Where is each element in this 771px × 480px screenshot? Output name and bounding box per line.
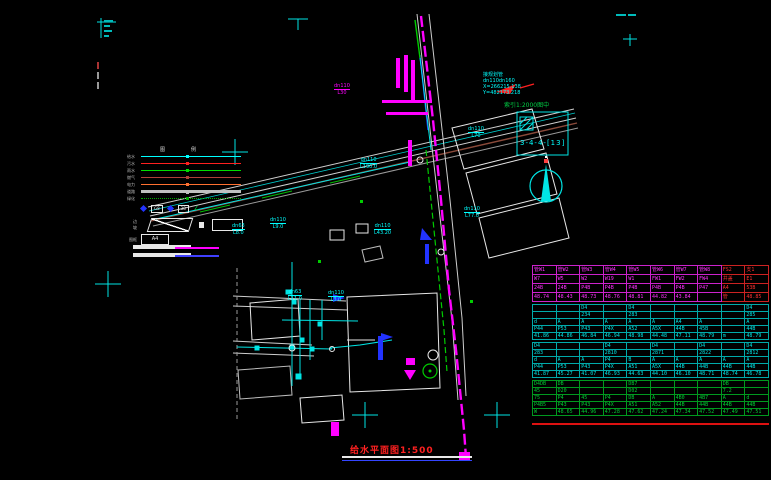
table-cell (603, 305, 627, 312)
table-cell: P43 (580, 364, 604, 371)
legend-line-marker (186, 162, 189, 165)
table-cell: 45.27 (556, 371, 580, 378)
legend-a4-row: 图框 A4 (129, 234, 169, 245)
pipeline-magenta (331, 16, 470, 460)
table-cell: 53B (745, 284, 769, 293)
legend-symbol-box: G8 (151, 205, 163, 213)
table-row: 24B24BP4BP4BP4BP4BP4BP47A453B (533, 284, 769, 293)
table-row: 2832810287128222812 (533, 350, 769, 357)
table-group-g4: D4DBDBDB7DB45D20D027.275P445P4DBA4B04B7A… (532, 380, 769, 416)
table-cell: 24B (533, 284, 557, 293)
table-cell: 47.49 (721, 409, 745, 416)
table-cell: 管 (721, 293, 745, 302)
table-cell: A51 (627, 402, 651, 409)
table-cell: 48.79 (698, 333, 722, 340)
pipe-label: dn110L70 (468, 126, 484, 139)
table-row: 41.8745.2741.0746.9344.6344.1046.1048.71… (533, 371, 769, 378)
legend-line-marker (186, 183, 189, 186)
table-cell (627, 350, 651, 357)
table-cell (698, 381, 722, 388)
legend-green-mark: ∠ (194, 205, 199, 212)
table-cell: A (603, 319, 627, 326)
table-cell: 井盖 (721, 275, 745, 284)
table-cell (721, 326, 745, 333)
table-cell: 2812 (745, 350, 769, 357)
table-cell: D4 (533, 343, 557, 350)
legend-row-label: 道路 (127, 189, 141, 194)
table-cell: 44.10 (650, 371, 674, 378)
table-cell (698, 388, 722, 395)
table-cell (580, 388, 604, 395)
north-arrow (530, 156, 562, 202)
table-group-g2: D4D4D4234283285dAAAAAA4AAP44P53P43P4XA52… (532, 304, 769, 340)
slope-label: 边坡 (133, 219, 141, 231)
table-cell (674, 305, 698, 312)
table-cell: W1 (627, 275, 651, 284)
table-row: 48.7448.4348.7348.7648.8144.8243.84管48.8… (533, 293, 769, 302)
table-cell: A (650, 395, 674, 402)
table-cell: 4B0 (674, 395, 698, 402)
table-cell: A (674, 357, 698, 364)
table-cell: 41.87 (533, 371, 557, 378)
valve-diamond-icon (167, 205, 174, 212)
table-cell: 46.10 (674, 371, 698, 378)
table-row: 45D20D027.2 (533, 388, 769, 395)
legend-row: 道路 (127, 188, 241, 195)
table-cell: DB (556, 381, 580, 388)
index-reference: 3-4-4-[13] (520, 139, 565, 147)
table-cell: 44.86 (556, 333, 580, 340)
table-group-g1: 管W1管W2管W3管W4管W5管W6管W7管W8FS2支1W7W5W2W19W1… (532, 265, 769, 302)
table-cell: A5X (650, 364, 674, 371)
legend-row-label: 燃气 (127, 175, 141, 180)
table-cell: D4 (580, 305, 604, 312)
table-cell (603, 388, 627, 395)
table-cell: 48.74 (533, 293, 557, 302)
table-row: dAAP4BAAAAA (533, 357, 769, 364)
table-cell (674, 381, 698, 388)
table-cell: P44 (533, 326, 557, 333)
table-cell: A51 (627, 364, 651, 371)
table-cell: 48.74 (721, 371, 745, 378)
table-cell: P4X (603, 364, 627, 371)
index-box (517, 112, 568, 155)
table-cell: D4 (627, 305, 651, 312)
pipe-label: dn63L8.0 (232, 223, 245, 236)
table-cell (674, 343, 698, 350)
table-cell (580, 350, 604, 357)
table-cell: 支1 (745, 266, 769, 275)
table-cell: D4 (745, 343, 769, 350)
table-row: D4D4D4D4D4 (533, 343, 769, 350)
table-cell: P47 (698, 284, 722, 293)
table-cell: A (698, 319, 722, 326)
table-row: P4B5P43P43P4XA51A5244B44B44B44B (533, 402, 769, 409)
table-cell (698, 293, 722, 302)
table-cell: 44.48 (650, 333, 674, 340)
legend-row: 雨水 (127, 167, 241, 174)
table-cell: P4 (603, 357, 627, 364)
legend-slope-row: 边坡 (133, 218, 243, 232)
table-cell: 43.84 (674, 293, 698, 302)
table-cell (745, 388, 769, 395)
title-underline-white (342, 456, 472, 458)
table-cell: 46.84 (580, 333, 604, 340)
table-cell: FS2 (721, 266, 745, 275)
house-filled-symbol (199, 222, 205, 228)
table-cell: A (698, 357, 722, 364)
table-cell: 283 (627, 312, 651, 319)
table-cell (650, 388, 674, 395)
table-cell: 2822 (698, 350, 722, 357)
table-cell: 44B (698, 402, 722, 409)
pipe-label: dn110L190.0 (360, 157, 377, 170)
table-cell: 48.43 (556, 293, 580, 302)
legend-line-sample (141, 170, 241, 171)
table-cell: 管W6 (650, 266, 674, 275)
legend-row-label: 污水 (127, 161, 141, 166)
table-cell: A (556, 319, 580, 326)
legend-line-marker (186, 176, 189, 179)
table-cell: 4B7 (698, 395, 722, 402)
drawing-title: 给水平面图1:500 (350, 443, 434, 456)
table-cell: B (627, 357, 651, 364)
table-cell: P4B (627, 284, 651, 293)
cad-viewport: { "palette": {"cyan":"#00ffff","magenta"… (0, 0, 771, 480)
table-cell (721, 305, 745, 312)
table-cell: 管W4 (603, 266, 627, 275)
table-cell: 44B (698, 364, 722, 371)
table-cell: 283 (533, 350, 557, 357)
table-cell: 46.93 (603, 371, 627, 378)
legend-line-marker (186, 197, 189, 200)
index-scale-note: 索引1:2000图中 (504, 102, 549, 109)
legend-line-sample (141, 177, 241, 178)
table-cell: 45 (580, 395, 604, 402)
table-cell: W7 (533, 275, 557, 284)
magenta-sample-line (175, 247, 219, 249)
table-cell: A (745, 357, 769, 364)
table-cell: D4 (603, 343, 627, 350)
table-cell (556, 343, 580, 350)
legend-row-label: 雨水 (127, 168, 141, 173)
table-cell: 47.62 (627, 409, 651, 416)
table-cell: 48.65 (556, 409, 580, 416)
table-cell: P4 (603, 395, 627, 402)
table-cell (533, 305, 557, 312)
legend-row-label: 电力 (127, 182, 141, 187)
table-cell: 48.76 (603, 293, 627, 302)
table-cell: 管W1 (533, 266, 557, 275)
table-row: 234283285 (533, 312, 769, 319)
table-cell: A (556, 357, 580, 364)
title-underline-blue (342, 460, 472, 461)
table-row: 41.8644.8646.8446.9448.9844.4847.1148.79… (533, 333, 769, 340)
table-cell: A (721, 395, 745, 402)
legend-line-marker (186, 191, 189, 194)
table-row: P44P53P43P4XA52A5X44B45B44B (533, 326, 769, 333)
table-cell: A (627, 319, 651, 326)
legend-line-sample (141, 198, 241, 199)
table-row: W48.6544.9647.2847.6247.2447.3447.5247.4… (533, 409, 769, 416)
table-cell (650, 305, 674, 312)
table-cell: A4 (721, 284, 745, 293)
table-cell: 48.73 (580, 293, 604, 302)
table-cell: P43 (580, 326, 604, 333)
table-cell: P53 (556, 364, 580, 371)
table-cell (627, 343, 651, 350)
table-cell: D4DB (533, 381, 557, 388)
table-cell: 44.82 (650, 293, 674, 302)
legend-header: 图例 (160, 146, 222, 153)
table-cell: A (580, 319, 604, 326)
table-cell: A4 (674, 319, 698, 326)
table-cell (650, 381, 674, 388)
table-cell: 46.94 (603, 333, 627, 340)
pipe-label: dn110L30 (334, 83, 350, 96)
a4-label: 图框 (129, 237, 137, 243)
table-cell (721, 319, 745, 326)
legend-symbol-box: 38 (178, 205, 189, 213)
table-cell: 48.98 (627, 333, 651, 340)
table-cell (580, 343, 604, 350)
table-cell: 44B (745, 364, 769, 371)
table-cell: d (533, 357, 557, 364)
legend-row: 电力 (127, 181, 241, 188)
table-cell: 44B (721, 364, 745, 371)
table-cell: A (650, 357, 674, 364)
table-cell: P53 (556, 326, 580, 333)
table-cell: 46.78 (745, 371, 769, 378)
table-cell (698, 305, 722, 312)
table-cell: 44B (745, 402, 769, 409)
buildings (238, 109, 569, 423)
table-cell: 47.11 (674, 333, 698, 340)
table-cell: P4X (603, 326, 627, 333)
table-cell: W (533, 409, 557, 416)
table-cell: D4 (745, 305, 769, 312)
legend-row-label: 绿化 (127, 196, 141, 201)
table-cell: FW2 (674, 275, 698, 284)
table-row: 管W1管W2管W3管W4管W5管W6管W7管W8FS2支1 (533, 266, 769, 275)
table-cell: d (745, 395, 769, 402)
pipe-label: dn110L77.0 (464, 206, 480, 219)
table-cell (556, 305, 580, 312)
table-cell: 管W5 (627, 266, 651, 275)
table-cell: E1 (745, 275, 769, 284)
table-cell: 45 (533, 388, 557, 395)
table-cell: 41.86 (533, 333, 557, 340)
pipe-label: dn110L3.0 (328, 290, 344, 303)
table-cell: 44B (721, 402, 745, 409)
table-cell: 48.71 (698, 371, 722, 378)
table-cell: 44B (674, 402, 698, 409)
table-cell: P43 (556, 402, 580, 409)
table-cell: 44.96 (580, 409, 604, 416)
legend-line-rows: 给水污水雨水燃气电力道路绿化 (127, 153, 241, 202)
table-cell (556, 350, 580, 357)
table-cell (674, 388, 698, 395)
table-cell (745, 381, 769, 388)
table-cell: 45B (698, 326, 722, 333)
table-cell: A52 (627, 326, 651, 333)
legend-line-sample (141, 156, 241, 157)
table-cell: FW1 (650, 275, 674, 284)
table-cell: 44B (674, 326, 698, 333)
table-cell: 47.34 (674, 409, 698, 416)
table-cell: 管W7 (674, 266, 698, 275)
table-cell: m (721, 333, 745, 340)
table-cell (674, 312, 698, 319)
table-cell (603, 381, 627, 388)
elevation-data-table: 管W1管W2管W3管W4管W5管W6管W7管W8FS2支1W7W5W2W19W1… (532, 265, 769, 418)
table-cell: FW4 (698, 275, 722, 284)
legend-row: 给水 (127, 153, 241, 160)
table-cell: P4B5 (533, 402, 557, 409)
table-cell: 48.85 (745, 293, 769, 302)
pipe-label: dn63L11.0 (288, 289, 302, 302)
table-cell: P43 (580, 402, 604, 409)
legend-row: 燃气 (127, 174, 241, 181)
table-cell: A5X (650, 326, 674, 333)
table-cell: A (580, 357, 604, 364)
table-cell (674, 350, 698, 357)
blue-sample-line (175, 255, 219, 257)
table-underline-red (532, 423, 769, 425)
table-cell: 47.24 (650, 409, 674, 416)
legend-row: 绿化 (127, 195, 241, 202)
table-cell: 2810 (603, 350, 627, 357)
table-cell: 285 (745, 312, 769, 319)
table-cell: P4B (674, 284, 698, 293)
table-row: 75P445P4DBA4B04B7Ad (533, 395, 769, 402)
legend-symbol-row: G8 38 ∠ (141, 204, 199, 213)
table-cell (556, 312, 580, 319)
table-cell (603, 312, 627, 319)
table-cell: 47.52 (698, 409, 722, 416)
table-cell: 47.51 (745, 409, 769, 416)
table-cell: A52 (650, 402, 674, 409)
table-cell (533, 312, 557, 319)
legend-line-sample (141, 190, 241, 193)
table-cell: P4X (603, 402, 627, 409)
table-cell: DB7 (627, 381, 651, 388)
table-cell: 7.2 (721, 388, 745, 395)
table-row: D4DBDBDB7DB (533, 381, 769, 388)
corner-text-marks (97, 14, 636, 89)
table-cell: DB (627, 395, 651, 402)
table-cell (650, 312, 674, 319)
table-cell: D4 (650, 343, 674, 350)
table-cell: 47.28 (603, 409, 627, 416)
legend-line-marker (186, 169, 189, 172)
table-cell: P4B (650, 284, 674, 293)
table-cell: d (533, 319, 557, 326)
table-cell: 44B (674, 364, 698, 371)
a4-box: A4 (141, 234, 169, 245)
table-cell: P44 (533, 364, 557, 371)
legend-row-label: 给水 (127, 154, 141, 159)
table-cell: 48.81 (627, 293, 651, 302)
table-cell: 44.63 (627, 371, 651, 378)
table-cell: W19 (603, 275, 627, 284)
table-cell: 41.07 (580, 371, 604, 378)
table-cell (580, 381, 604, 388)
table-group-g3: D4D4D4D4D42832810287128222812dAAP4BAAAAA… (532, 342, 769, 378)
table-cell: A (745, 319, 769, 326)
table-cell: D4 (698, 343, 722, 350)
table-cell: 管W2 (556, 266, 580, 275)
table-cell: 管W8 (698, 266, 722, 275)
table-cell (721, 343, 745, 350)
table-cell: 44B (745, 326, 769, 333)
valve-symbols (289, 157, 444, 360)
connection-coordinate-note: 接规划管 dn110dn160 X=266215.138 Y=482173.21… (483, 72, 521, 96)
table-row: dAAAAAA4AA (533, 319, 769, 326)
table-cell: 75 (533, 395, 557, 402)
table-row: D4D4D4 (533, 305, 769, 312)
table-cell: 234 (580, 312, 604, 319)
table-cell: 48.79 (745, 333, 769, 340)
table-cell: A (721, 357, 745, 364)
legend-line-marker (186, 155, 189, 158)
table-cell: D20 (556, 388, 580, 395)
pipe-label: dn110L9.0 (270, 217, 286, 230)
table-cell: 2871 (650, 350, 674, 357)
legend-row: 污水 (127, 160, 241, 167)
vertical-road (417, 14, 466, 400)
table-cell: P4B (603, 284, 627, 293)
table-cell: DB (721, 381, 745, 388)
coord-note-y: Y=482173.218 (483, 90, 521, 96)
table-cell: D02 (627, 388, 651, 395)
legend-line-sample (141, 163, 241, 164)
table-row: P44P53P43P4XA51A5X44B44B44B44B (533, 364, 769, 371)
legend-line-sample (141, 184, 241, 185)
table-cell: 管W3 (580, 266, 604, 275)
valve-diamond-icon (140, 205, 147, 212)
table-cell: A (650, 319, 674, 326)
table-cell: P4B (580, 284, 604, 293)
table-cell: W5 (556, 275, 580, 284)
pipe-label: dn110L43.20 (374, 223, 391, 236)
table-cell: 24B (556, 284, 580, 293)
table-cell (721, 312, 745, 319)
slope-symbol (146, 218, 193, 232)
table-cell (721, 350, 745, 357)
table-cell (698, 312, 722, 319)
table-cell: P4 (556, 395, 580, 402)
table-row: W7W5W2W19W1FW1FW2FW4井盖E1 (533, 275, 769, 284)
table-cell: W2 (580, 275, 604, 284)
